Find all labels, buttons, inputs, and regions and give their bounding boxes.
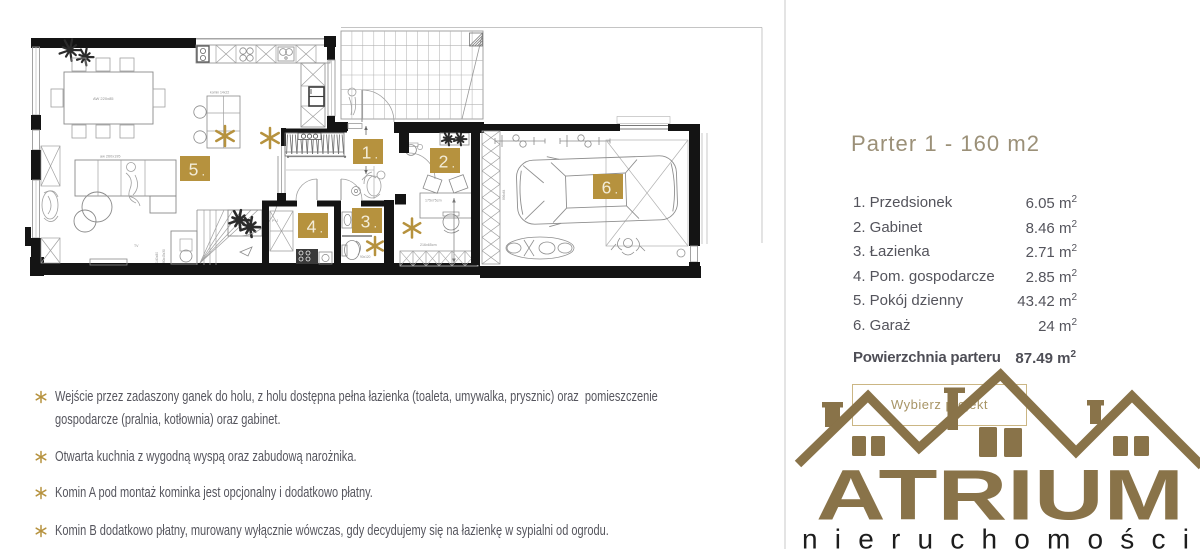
svg-text:.: . [202, 164, 206, 179]
svg-text:2: 2 [439, 152, 449, 172]
svg-text:.: . [320, 221, 324, 236]
svg-text:TV: TV [134, 244, 139, 248]
svg-text:896x64: 896x64 [502, 189, 506, 200]
svg-text:4: 4 [307, 217, 317, 237]
svg-text:90x120: 90x120 [360, 255, 371, 259]
svg-text:6: 6 [602, 178, 612, 198]
svg-text:.: . [615, 182, 619, 197]
svg-text:216x65cm: 216x65cm [420, 243, 437, 247]
svg-text:5: 5 [189, 160, 199, 180]
svg-text:80x45x30: 80x45x30 [162, 249, 166, 263]
svg-text:3: 3 [361, 212, 371, 232]
svg-text:P+J: P+J [272, 219, 278, 223]
svg-text:.: . [452, 156, 456, 171]
svg-text:aw 260x195: aw 260x195 [100, 155, 120, 159]
svg-text:1: 1 [362, 143, 372, 163]
svg-text:175x75cm: 175x75cm [425, 199, 442, 203]
svg-text:AW 220x85: AW 220x85 [93, 96, 114, 101]
svg-text:nieruchomości: nieruchomości [802, 524, 1200, 549]
svg-text:.: . [374, 216, 378, 231]
svg-text:.: . [375, 147, 379, 162]
svg-text:140x80: 140x80 [155, 252, 159, 263]
svg-text:komin 14x22: komin 14x22 [210, 91, 229, 95]
